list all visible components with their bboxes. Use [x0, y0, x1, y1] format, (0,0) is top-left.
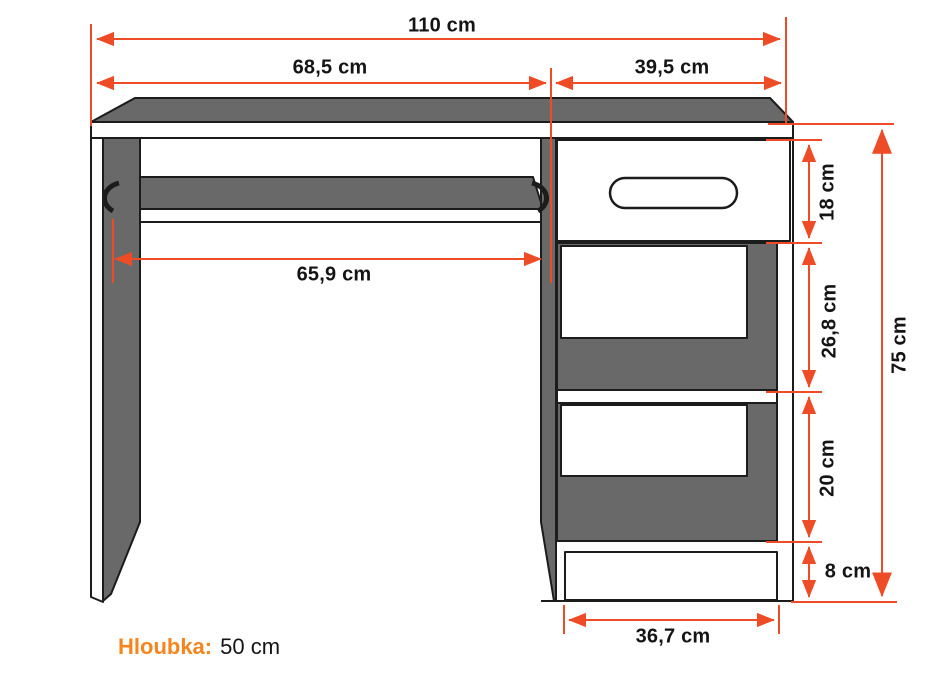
dim-label-upper-niche-height: 26,8 cm: [819, 284, 842, 359]
depth-note: Hloubka:50 cm: [118, 634, 280, 660]
keyboard-tray-surface: [108, 177, 543, 209]
dim-label-plinth-height: 8 cm: [825, 561, 871, 584]
left-leg-front-edge: [91, 138, 103, 602]
dim-label-left-width: 68,5 cm: [293, 57, 368, 80]
dim-label-tray-width: 65,9 cm: [297, 264, 372, 287]
pedestal-shelf: [557, 390, 777, 403]
desk-illustration: [91, 98, 793, 602]
depth-value: 50 cm: [220, 634, 280, 659]
pedestal-lower-niche-back: [561, 405, 747, 476]
pedestal-plinth-front: [565, 552, 777, 600]
desk-top-surface: [91, 98, 793, 122]
dim-label-total-height: 75 cm: [889, 316, 912, 374]
dim-label-plinth-width: 36,7 cm: [636, 626, 711, 649]
furniture-dimension-diagram: 110 cm 68,5 cm 39,5 cm 65,9 cm 18 cm 26,…: [0, 0, 928, 686]
depth-label: Hloubka:: [118, 634, 212, 659]
dim-label-right-width: 39,5 cm: [635, 57, 710, 80]
keyboard-tray-edge: [108, 209, 543, 222]
pedestal-upper-niche-back: [561, 246, 747, 338]
dim-label-total-width: 110 cm: [408, 15, 476, 38]
dim-label-lower-niche-height: 20 cm: [817, 439, 840, 497]
drawer-handle-cutout: [610, 178, 737, 208]
dim-label-drawer-height: 18 cm: [817, 163, 840, 221]
desk-top-front-edge: [91, 122, 793, 138]
desk-drawing-canvas: [0, 0, 928, 686]
